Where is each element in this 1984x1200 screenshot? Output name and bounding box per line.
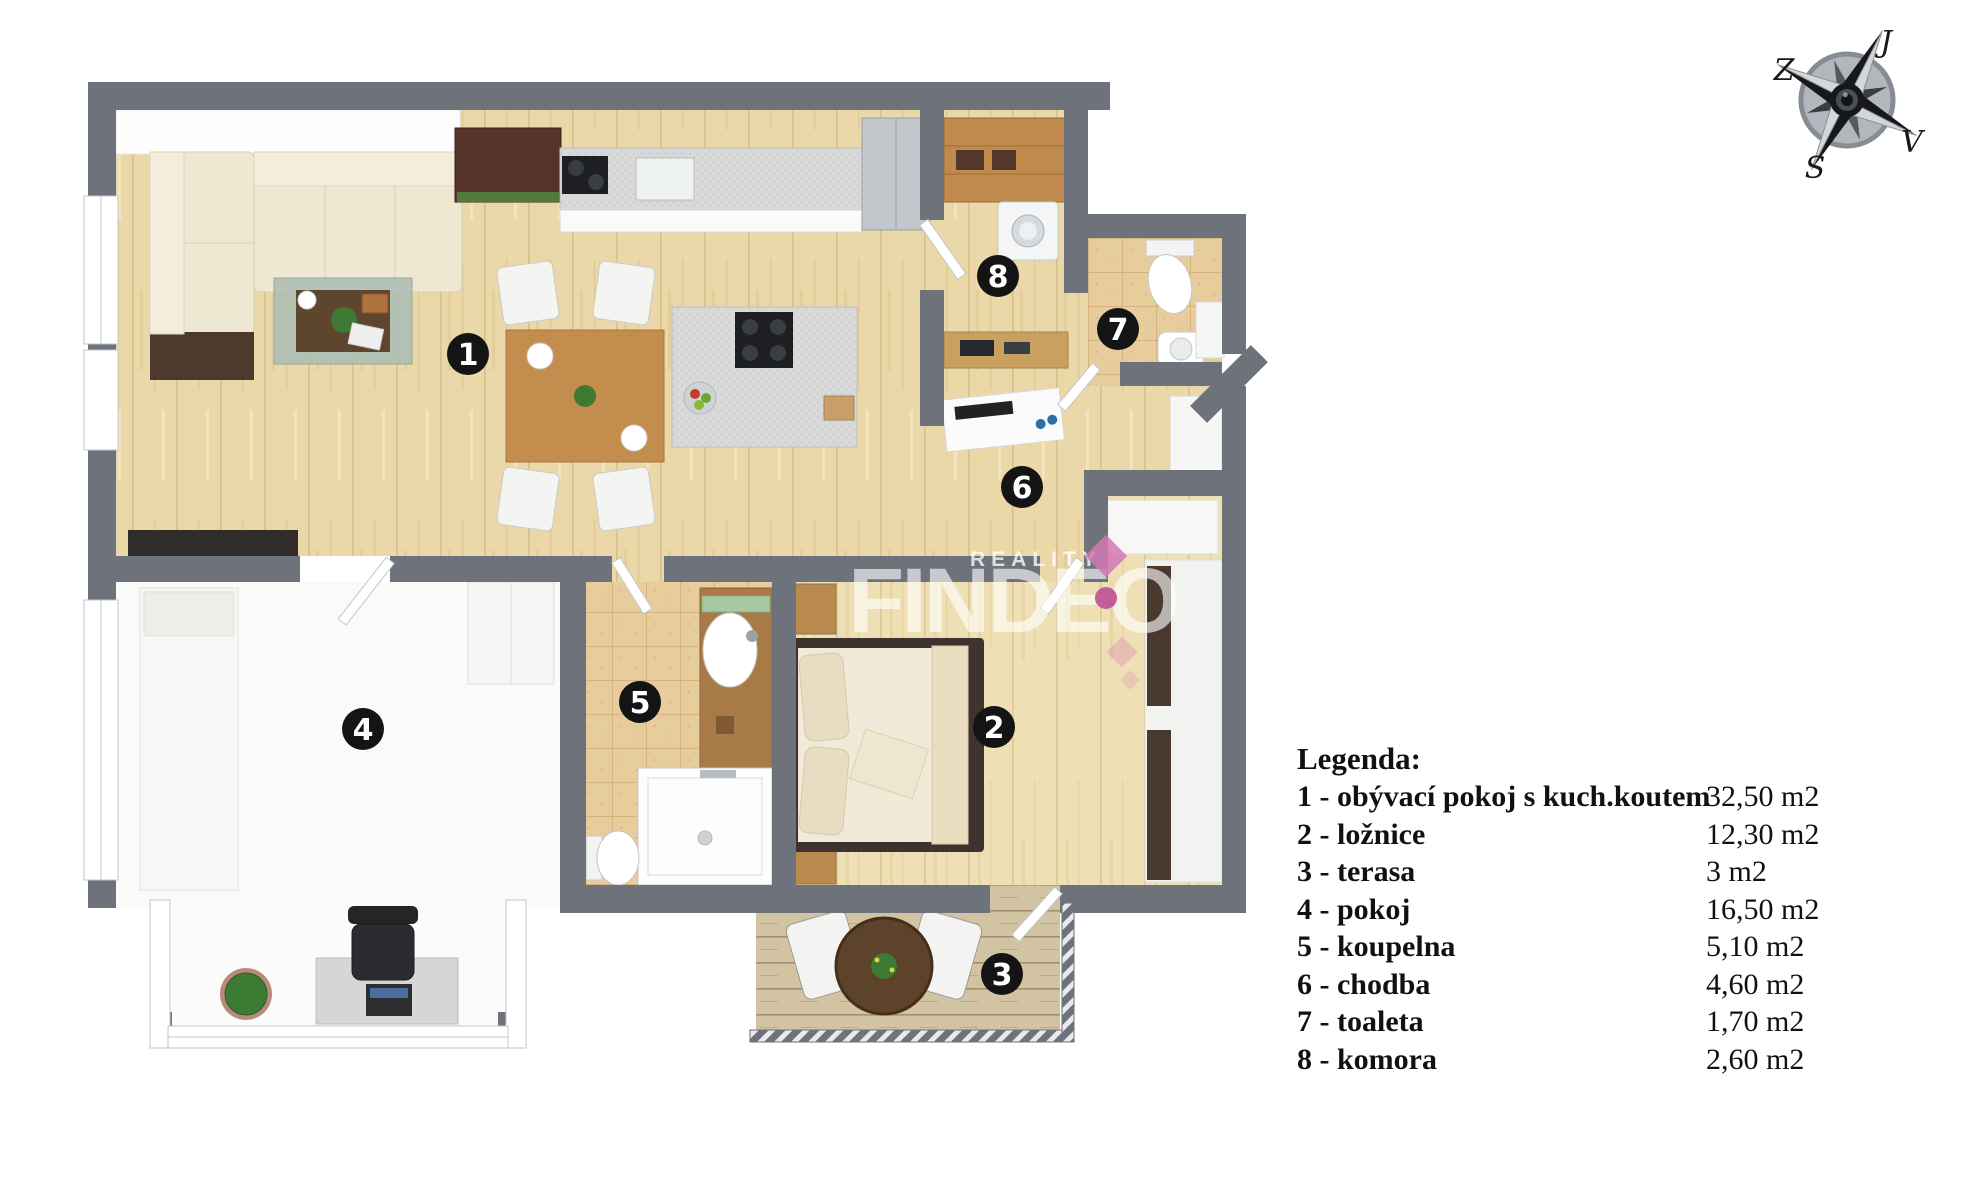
legend-room-label: 7 - toaleta — [1297, 1003, 1706, 1041]
coffee-table — [274, 278, 412, 364]
office-chair — [348, 906, 418, 924]
legend-room-area: 1,70 m2 — [1706, 1003, 1804, 1041]
svg-text:6: 6 — [1012, 471, 1033, 506]
compass-label-v: V — [1901, 125, 1926, 160]
svg-text:7: 7 — [1108, 313, 1129, 348]
legend-row-3: 3 - terasa 3 m2 — [1297, 853, 1957, 891]
legend-room-label: 5 - koupelna — [1297, 928, 1706, 966]
kitchen-island — [672, 307, 857, 447]
legend-room-label: 6 - chodba — [1297, 966, 1706, 1004]
legend-room-area: 32,50 m2 — [1706, 778, 1819, 816]
badge-room-2: 2 — [973, 706, 1015, 748]
svg-text:2: 2 — [984, 711, 1005, 746]
legend-row-6: 6 - chodba 4,60 m2 — [1297, 966, 1957, 1004]
legend: Legenda: 1 - obývací pokoj s kuch.koutem… — [1297, 740, 1957, 1078]
legend-room-label: 1 - obývací pokoj s kuch.koutem — [1297, 778, 1706, 816]
badge-room-4: 4 — [342, 708, 384, 750]
stove-icon — [562, 156, 608, 194]
toilet2-icon — [597, 831, 639, 885]
badge-room-5: 5 — [619, 681, 661, 723]
legend-row-7: 7 - toaleta 1,70 m2 — [1297, 1003, 1957, 1041]
legend-room-label: 4 - pokoj — [1297, 891, 1706, 929]
svg-text:3: 3 — [992, 958, 1013, 993]
bay-window — [150, 900, 170, 1048]
compass-label-s: S — [1805, 151, 1826, 186]
floorplan-page: REALITY FINDEO 1 2 3 4 5 6 7 8 — [0, 0, 1984, 1200]
svg-text:4: 4 — [353, 713, 374, 748]
legend-room-area: 16,50 m2 — [1706, 891, 1819, 929]
legend-room-area: 12,30 m2 — [1706, 816, 1819, 854]
sink-icon — [636, 158, 694, 200]
legend-room-area: 5,10 m2 — [1706, 928, 1804, 966]
svg-text:8: 8 — [988, 260, 1009, 295]
legend-title: Legenda: — [1297, 740, 1957, 778]
legend-room-area: 3 m2 — [1706, 853, 1767, 891]
legend-room-label: 3 - terasa — [1297, 853, 1706, 891]
window-sill — [116, 110, 460, 154]
badge-room-8: 8 — [977, 255, 1019, 297]
badge-room-7: 7 — [1097, 308, 1139, 350]
watermark-brand: FINDEO — [848, 550, 1178, 652]
window — [84, 350, 118, 450]
legend-row-4: 4 - pokoj 16,50 m2 — [1297, 891, 1957, 929]
shower-icon — [638, 768, 772, 885]
svg-text:5: 5 — [630, 686, 651, 721]
legend-room-label: 2 - ložnice — [1297, 816, 1706, 854]
watermark-dot-icon — [1095, 587, 1117, 609]
nightstand — [790, 584, 836, 634]
compass-label-z: Z — [1773, 53, 1796, 88]
legend-row-8: 8 - komora 2,60 m2 — [1297, 1041, 1957, 1079]
legend-row-1: 1 - obývací pokoj s kuch.koutem 32,50 m2 — [1297, 778, 1957, 816]
legend-room-area: 4,60 m2 — [1706, 966, 1804, 1004]
legend-row-2: 2 - ložnice 12,30 m2 — [1297, 816, 1957, 854]
cooktop-icon — [735, 312, 793, 368]
compass-rose: J Z V S — [1742, 0, 1952, 205]
legend-room-label: 8 - komora — [1297, 1041, 1706, 1079]
legend-row-5: 5 - koupelna 5,10 m2 — [1297, 928, 1957, 966]
terasa-furniture — [784, 909, 983, 1014]
badge-room-6: 6 — [1001, 466, 1043, 508]
badge-room-1: 1 — [447, 333, 489, 375]
svg-text:1: 1 — [458, 338, 479, 373]
nightstand — [790, 850, 836, 884]
legend-room-area: 2,60 m2 — [1706, 1041, 1804, 1079]
tv-lowboard — [128, 530, 298, 558]
bay-window — [506, 900, 526, 1048]
badge-room-3: 3 — [981, 953, 1023, 995]
washbasin-icon — [703, 613, 757, 687]
